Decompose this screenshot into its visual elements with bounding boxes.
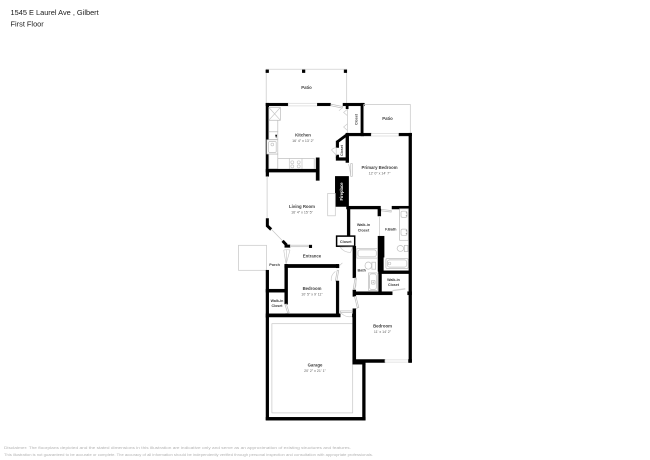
svg-text:Closet: Closet (272, 304, 284, 308)
svg-text:Bedroom: Bedroom (303, 286, 322, 291)
svg-text:16' 4" x 15' 5": 16' 4" x 15' 5" (291, 211, 313, 215)
svg-text:Kitchen: Kitchen (295, 132, 311, 137)
svg-text:1545 E Laurel Ave , Gilbert: 1545 E Laurel Ave , Gilbert (11, 8, 99, 17)
svg-text:Closet: Closet (388, 283, 400, 287)
svg-text:Closet: Closet (340, 240, 352, 244)
svg-text:Primary Bedroom: Primary Bedroom (361, 165, 397, 170)
svg-text:Fireplace: Fireplace (339, 182, 344, 201)
svg-text:Closet: Closet (355, 113, 359, 125)
svg-text:Patio: Patio (382, 116, 393, 121)
svg-text:Closet: Closet (358, 228, 370, 232)
svg-text:Porch: Porch (269, 263, 280, 267)
svg-text:16' 4" x 13' 2": 16' 4" x 13' 2" (292, 139, 314, 143)
svg-text:Garage: Garage (308, 362, 323, 367)
svg-text:This illustration is not guara: This illustration is not guaranteed to b… (4, 453, 373, 457)
svg-text:Walk-in: Walk-in (357, 223, 371, 227)
svg-text:10' 5" x 9' 11": 10' 5" x 9' 11" (301, 293, 323, 297)
svg-text:Walk-in: Walk-in (387, 278, 400, 282)
svg-text:Entrance: Entrance (303, 253, 322, 258)
svg-text:Living Room: Living Room (289, 204, 315, 209)
svg-text:Walk-in: Walk-in (271, 299, 284, 303)
svg-text:Closet: Closet (340, 144, 344, 156)
svg-text:12' 0" x 14' 7": 12' 0" x 14' 7" (369, 172, 391, 176)
svg-text:F.Bath: F.Bath (385, 227, 397, 231)
svg-text:First Floor: First Floor (11, 19, 45, 28)
svg-text:Disclaimer: The floorplans dep: Disclaimer: The floorplans depicted and … (4, 446, 351, 450)
svg-text:11' x 14' 2": 11' x 14' 2" (374, 330, 392, 334)
svg-text:Bath: Bath (357, 269, 366, 273)
svg-text:20' 2" x 21' 1": 20' 2" x 21' 1" (304, 369, 326, 373)
svg-text:Bedroom: Bedroom (373, 324, 392, 329)
svg-text:Patio: Patio (301, 85, 312, 90)
